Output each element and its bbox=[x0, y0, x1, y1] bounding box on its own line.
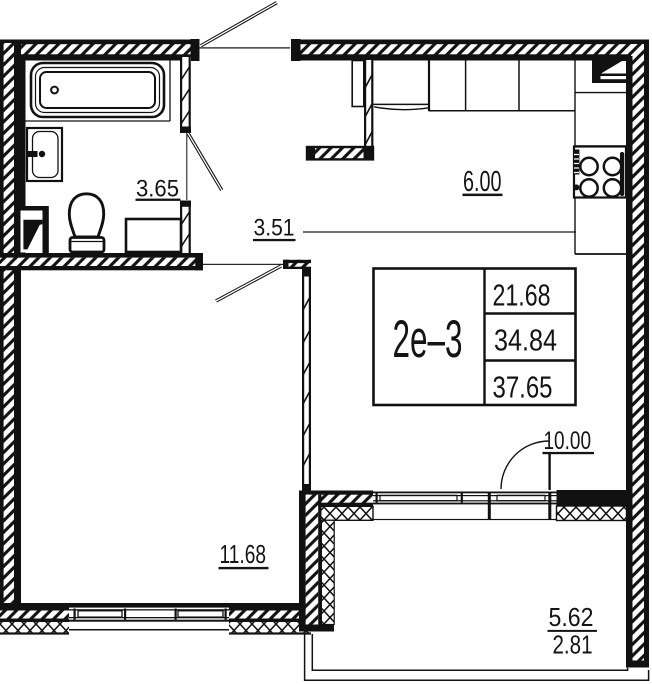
svg-text:3.51: 3.51 bbox=[254, 215, 295, 242]
svg-text:5.62: 5.62 bbox=[549, 602, 594, 632]
svg-text:11.68: 11.68 bbox=[220, 539, 267, 569]
svg-text:6.00: 6.00 bbox=[463, 166, 502, 198]
svg-text:2е–3: 2е–3 bbox=[393, 310, 463, 369]
svg-text:21.68: 21.68 bbox=[493, 278, 551, 313]
svg-text:10.00: 10.00 bbox=[544, 427, 592, 455]
svg-text:34.84: 34.84 bbox=[494, 323, 557, 358]
svg-text:2.81: 2.81 bbox=[553, 630, 593, 660]
svg-text:37.65: 37.65 bbox=[493, 370, 553, 405]
svg-text:3.65: 3.65 bbox=[136, 176, 179, 203]
